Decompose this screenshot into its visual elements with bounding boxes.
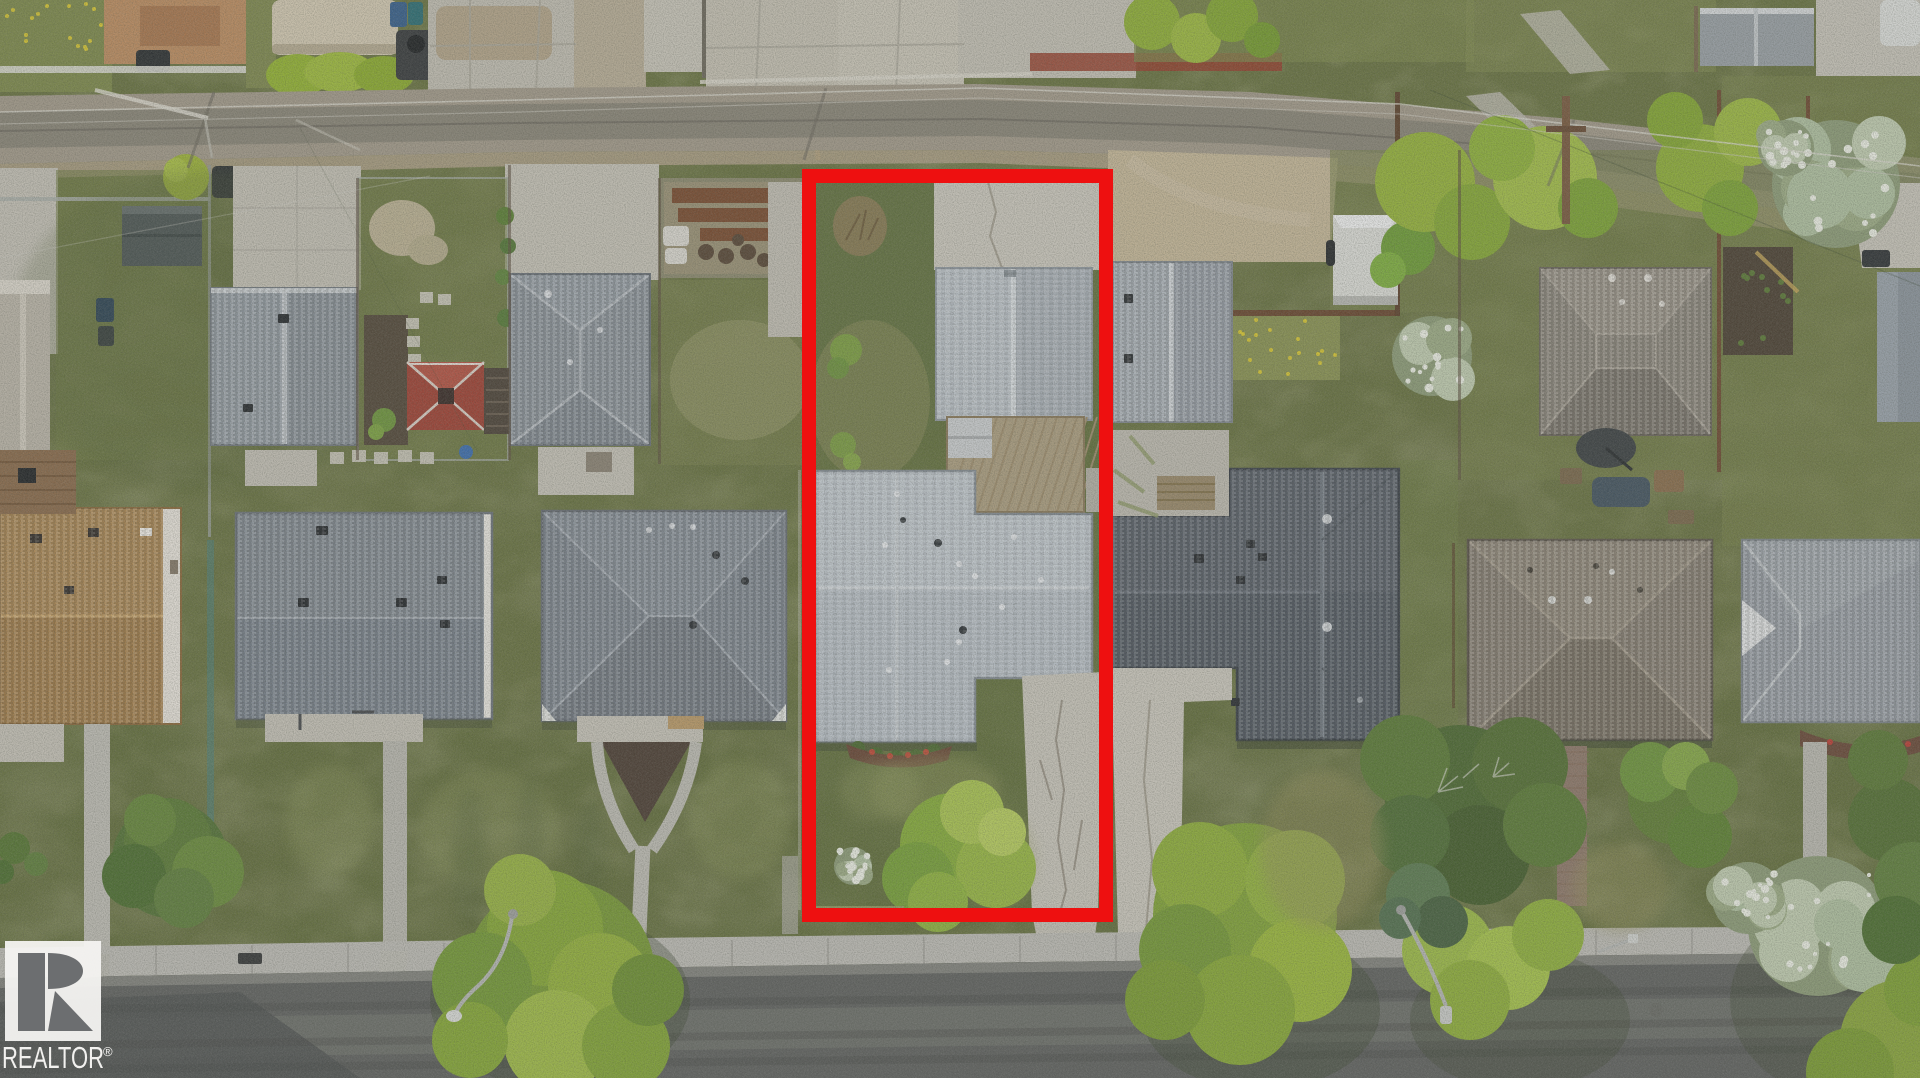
svg-text:REALTOR: REALTOR <box>2 1040 104 1075</box>
svg-text:®: ® <box>103 1044 113 1059</box>
